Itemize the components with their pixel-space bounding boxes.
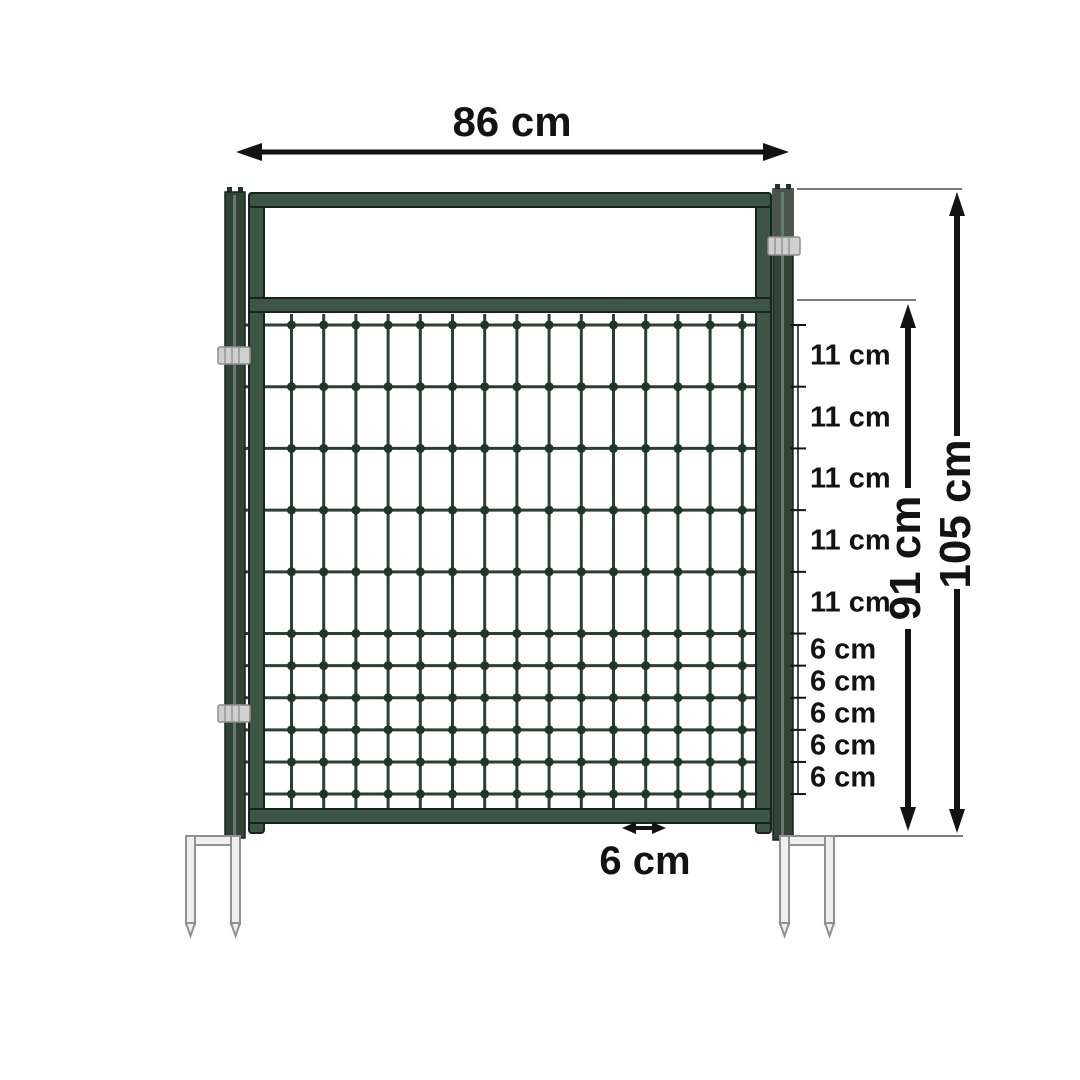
- mesh-weld-dot: [577, 790, 586, 799]
- mesh-weld-dot: [351, 629, 360, 638]
- mesh-weld-dot: [416, 567, 425, 576]
- mesh-weld-dot: [351, 693, 360, 702]
- row-spacing-label: 6 cm: [810, 635, 876, 664]
- mesh-weld-dot: [512, 321, 521, 330]
- mesh-weld-dot: [706, 725, 715, 734]
- arrowhead-left: [236, 143, 262, 161]
- gate-frame-bottom-bar: [249, 809, 771, 823]
- right-post-highlight: [781, 192, 784, 836]
- row-spacing-label: 11 cm: [810, 465, 891, 494]
- mesh-weld-dot: [319, 444, 328, 453]
- mesh-weld-dot: [384, 567, 393, 576]
- mesh-weld-dot: [319, 567, 328, 576]
- mesh-weld-dot: [641, 757, 650, 766]
- mesh-weld-dot: [319, 790, 328, 799]
- mesh-weld-dot: [512, 725, 521, 734]
- mesh-weld-dot: [416, 629, 425, 638]
- mesh-weld-dot: [416, 693, 425, 702]
- left-post-highlight: [233, 195, 236, 835]
- width-dimension-arrow: [236, 143, 789, 161]
- mesh-weld-dot: [416, 661, 425, 670]
- mesh-weld-dot: [738, 693, 747, 702]
- mesh-weld-dot: [641, 444, 650, 453]
- mesh-weld-dot: [480, 382, 489, 391]
- mesh-weld-dot: [351, 725, 360, 734]
- left-ground-stake: [186, 836, 240, 936]
- mesh-weld-dot: [673, 506, 682, 515]
- mesh-weld-dot: [287, 757, 296, 766]
- left-post-clamp-upper: [218, 347, 250, 364]
- row-spacing-label: 6 cm: [810, 667, 876, 696]
- mesh-weld-dot: [609, 567, 618, 576]
- mesh-weld-dot: [512, 693, 521, 702]
- mesh-weld-dot: [673, 321, 682, 330]
- mesh-weld-dot: [545, 725, 554, 734]
- mesh-weld-dot: [512, 661, 521, 670]
- mesh-weld-dot: [673, 661, 682, 670]
- mesh-weld-dot: [448, 661, 457, 670]
- mesh-weld-dot: [512, 757, 521, 766]
- mesh-weld-dot: [706, 629, 715, 638]
- mesh-weld-dot: [609, 790, 618, 799]
- mesh-weld-dot: [287, 506, 296, 515]
- arrowhead-down: [949, 809, 965, 833]
- row-spacing-label: 11 cm: [810, 403, 891, 432]
- width-dimension-label: 86 cm: [452, 101, 571, 143]
- arrowhead-right: [763, 143, 789, 161]
- mesh-weld-dot: [512, 444, 521, 453]
- mesh-weld-dot: [641, 790, 650, 799]
- mesh-weld-dot: [738, 757, 747, 766]
- mesh-weld-dot: [738, 321, 747, 330]
- mesh-weld-dot: [351, 444, 360, 453]
- stake-spike-tip: [825, 923, 834, 936]
- mesh-weld-dot: [673, 629, 682, 638]
- mesh-weld-dot: [738, 444, 747, 453]
- mesh-weld-dot: [706, 321, 715, 330]
- mesh-weld-dot: [448, 725, 457, 734]
- mesh-weld-dot: [706, 661, 715, 670]
- gate-frame-middle-bar: [249, 298, 771, 312]
- mesh-weld-dot: [416, 382, 425, 391]
- mesh-weld-dot: [448, 321, 457, 330]
- mesh-weld-dot: [545, 757, 554, 766]
- mesh-weld-dot: [706, 567, 715, 576]
- mesh-weld-dot: [384, 757, 393, 766]
- mesh-weld-dot: [738, 790, 747, 799]
- mesh-weld-dot: [480, 444, 489, 453]
- mesh-weld-dot: [384, 725, 393, 734]
- mesh-weld-dot: [287, 382, 296, 391]
- mesh-weld-dot: [545, 506, 554, 515]
- mesh-weld-dot: [738, 382, 747, 391]
- stake-spike-tip: [780, 923, 789, 936]
- mesh-weld-dot: [609, 444, 618, 453]
- mesh-weld-dot: [480, 725, 489, 734]
- mesh-weld-dot: [384, 661, 393, 670]
- mesh-weld-dot: [706, 790, 715, 799]
- mesh-weld-dot: [641, 661, 650, 670]
- mesh-weld-dot: [577, 567, 586, 576]
- mesh-weld-dot: [706, 444, 715, 453]
- gate-frame-right-post: [756, 193, 771, 833]
- mesh-weld-dot: [673, 567, 682, 576]
- mesh-weld-dot: [384, 790, 393, 799]
- mesh-weld-dot: [384, 629, 393, 638]
- mesh-weld-dot: [673, 444, 682, 453]
- mesh-weld-dot: [480, 757, 489, 766]
- mesh-weld-dot: [545, 444, 554, 453]
- mesh-weld-dot: [673, 382, 682, 391]
- mesh-weld-dot: [319, 506, 328, 515]
- mesh-weld-dot: [384, 321, 393, 330]
- mesh-weld-dot: [319, 661, 328, 670]
- mesh-weld-dot: [448, 382, 457, 391]
- mesh-weld-dot: [287, 567, 296, 576]
- mesh-weld-dot: [384, 444, 393, 453]
- ground-stakes: [186, 836, 834, 936]
- mesh-weld-dot: [319, 321, 328, 330]
- mesh-weld-dot: [545, 382, 554, 391]
- mesh-weld-dot: [448, 567, 457, 576]
- gate-frame-top-bar: [249, 193, 771, 207]
- mesh-weld-dot: [287, 661, 296, 670]
- mesh-weld-dot: [384, 382, 393, 391]
- mesh-weld-dot: [351, 506, 360, 515]
- mesh-weld-dot: [416, 506, 425, 515]
- mesh-weld-dot: [351, 321, 360, 330]
- mesh-weld-dot: [577, 321, 586, 330]
- row-spacing-label: 11 cm: [810, 526, 891, 555]
- right-ground-stake: [780, 836, 834, 936]
- mesh-weld-dot: [641, 629, 650, 638]
- mesh-weld-dot: [480, 567, 489, 576]
- mesh-weld-dot: [384, 506, 393, 515]
- mesh-weld-dot: [641, 567, 650, 576]
- arrowhead-up: [900, 304, 916, 328]
- mesh-weld-dot: [673, 790, 682, 799]
- mesh-weld-dot: [480, 629, 489, 638]
- mesh-grid: [243, 314, 764, 810]
- mesh-weld-dot: [545, 661, 554, 670]
- mesh-weld-dot: [673, 693, 682, 702]
- mesh-weld-dot: [512, 506, 521, 515]
- mesh-weld-dot: [416, 725, 425, 734]
- mesh-weld-dot: [351, 790, 360, 799]
- mesh-weld-dot: [480, 321, 489, 330]
- mesh-weld-dot: [416, 790, 425, 799]
- column-spacing-label: 6 cm: [599, 841, 690, 881]
- mesh-weld-dot: [319, 629, 328, 638]
- row-spacing-label: 11 cm: [810, 341, 891, 370]
- mesh-weld-dot: [287, 629, 296, 638]
- mesh-weld-dot: [738, 725, 747, 734]
- mesh-weld-dot: [480, 790, 489, 799]
- mesh-weld-dot: [706, 693, 715, 702]
- mesh-weld-dot: [577, 382, 586, 391]
- stake-spike-tip: [231, 923, 240, 936]
- gate-frame-left-post: [249, 193, 264, 833]
- mesh-weld-dot: [416, 444, 425, 453]
- mesh-weld-dot: [448, 506, 457, 515]
- mesh-weld-dot: [609, 506, 618, 515]
- mesh-weld-dot: [609, 757, 618, 766]
- mesh-weld-dot: [319, 757, 328, 766]
- mesh-weld-dot: [416, 757, 425, 766]
- mesh-weld-dot: [512, 790, 521, 799]
- mesh-weld-dot: [577, 725, 586, 734]
- mesh-weld-dot: [577, 661, 586, 670]
- mesh-weld-dot: [384, 693, 393, 702]
- arrowhead-down: [900, 807, 916, 831]
- mesh-weld-dot: [448, 790, 457, 799]
- mesh-weld-dot: [641, 382, 650, 391]
- mesh-weld-dot: [319, 382, 328, 391]
- mesh-weld-dot: [545, 567, 554, 576]
- mesh-weld-dot: [287, 321, 296, 330]
- mesh-weld-dot: [738, 506, 747, 515]
- arrowhead-up: [949, 192, 965, 216]
- mesh-weld-dot: [609, 661, 618, 670]
- mesh-weld-dot: [577, 693, 586, 702]
- mesh-weld-dot: [480, 506, 489, 515]
- mesh-weld-dot: [609, 725, 618, 734]
- left-post-clamp-lower: [218, 705, 250, 722]
- total-height-dimension-label: 105 cm: [934, 439, 978, 588]
- mesh-weld-dot: [706, 506, 715, 515]
- mesh-weld-dot: [577, 757, 586, 766]
- mesh-weld-dot: [641, 693, 650, 702]
- mesh-weld-dot: [545, 321, 554, 330]
- mesh-weld-dot: [287, 790, 296, 799]
- mesh-weld-dot: [641, 725, 650, 734]
- mesh-weld-dot: [577, 629, 586, 638]
- mesh-weld-dot: [641, 506, 650, 515]
- mesh-weld-dot: [351, 757, 360, 766]
- mesh-weld-dot: [545, 693, 554, 702]
- mesh-weld-dot: [577, 506, 586, 515]
- mesh-weld-dot: [545, 790, 554, 799]
- mesh-weld-dot: [512, 382, 521, 391]
- row-spacing-label: 6 cm: [810, 699, 876, 728]
- mesh-weld-dot: [577, 444, 586, 453]
- mesh-weld-dot: [738, 661, 747, 670]
- mesh-weld-dot: [673, 725, 682, 734]
- mesh-weld-dot: [287, 725, 296, 734]
- row-spacing-label: 6 cm: [810, 731, 876, 760]
- stake-spike-tip: [186, 923, 195, 936]
- mesh-weld-dot: [351, 567, 360, 576]
- mesh-weld-dot: [545, 629, 554, 638]
- mesh-weld-dot: [706, 757, 715, 766]
- row-spacing-label: 11 cm: [810, 588, 891, 617]
- mesh-weld-dot: [673, 757, 682, 766]
- mesh-weld-dot: [609, 382, 618, 391]
- mesh-weld-dot: [319, 725, 328, 734]
- mesh-weld-dot: [706, 382, 715, 391]
- mesh-weld-dot: [641, 321, 650, 330]
- mesh-weld-dot: [448, 444, 457, 453]
- mesh-weld-dot: [738, 567, 747, 576]
- mesh-weld-dot: [287, 444, 296, 453]
- gate-frame: [249, 193, 771, 833]
- right-post-clamp: [768, 237, 800, 255]
- mesh-weld-dot: [448, 629, 457, 638]
- mesh-weld-dot: [351, 661, 360, 670]
- mesh-weld-dot: [448, 757, 457, 766]
- mesh-weld-dot: [480, 693, 489, 702]
- mesh-weld-dot: [512, 567, 521, 576]
- mesh-weld-dot: [319, 693, 328, 702]
- gate-dimension-diagram: 86 cm 105 cm 91 cm 11 cm11 cm11 cm11 cm1…: [0, 0, 1080, 1080]
- mesh-weld-dot: [448, 693, 457, 702]
- mesh-weld-dot: [512, 629, 521, 638]
- mesh-weld-dot: [480, 661, 489, 670]
- mesh-weld-dot: [609, 321, 618, 330]
- mesh-weld-dot: [416, 321, 425, 330]
- mesh-weld-dot: [287, 693, 296, 702]
- mesh-weld-dot: [351, 382, 360, 391]
- row-spacing-label: 6 cm: [810, 764, 876, 793]
- mesh-weld-dot: [609, 693, 618, 702]
- mesh-weld-dot: [738, 629, 747, 638]
- mesh-weld-dot: [609, 629, 618, 638]
